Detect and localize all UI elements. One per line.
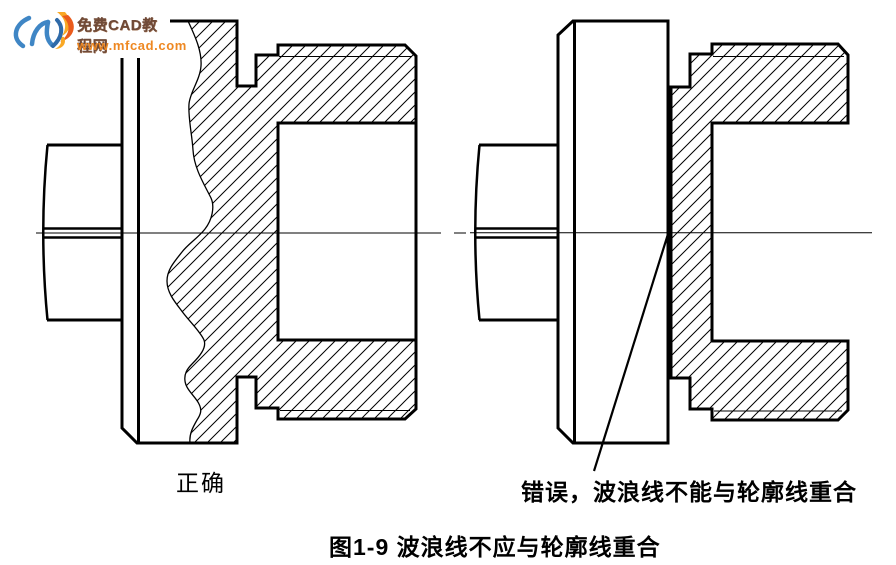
figure-caption: 图1-9 波浪线不应与轮廓线重合 — [329, 528, 661, 562]
correct-view-drawing — [36, 10, 466, 455]
left-bore-cavity — [278, 123, 416, 340]
label-correct: 正确 — [176, 464, 226, 498]
figure-canvas: 免费CAD教程网 www.mfcad.com 正确 错误，波浪线不能与轮廓线重合… — [0, 0, 896, 565]
watermark: 免费CAD教程网 www.mfcad.com — [0, 0, 170, 58]
incorrect-view-drawing — [470, 21, 872, 471]
mfcad-logo-icon — [5, 10, 83, 56]
watermark-site-url: www.mfcad.com — [77, 38, 187, 53]
label-incorrect: 错误，波浪线不能与轮廓线重合 — [521, 473, 857, 507]
